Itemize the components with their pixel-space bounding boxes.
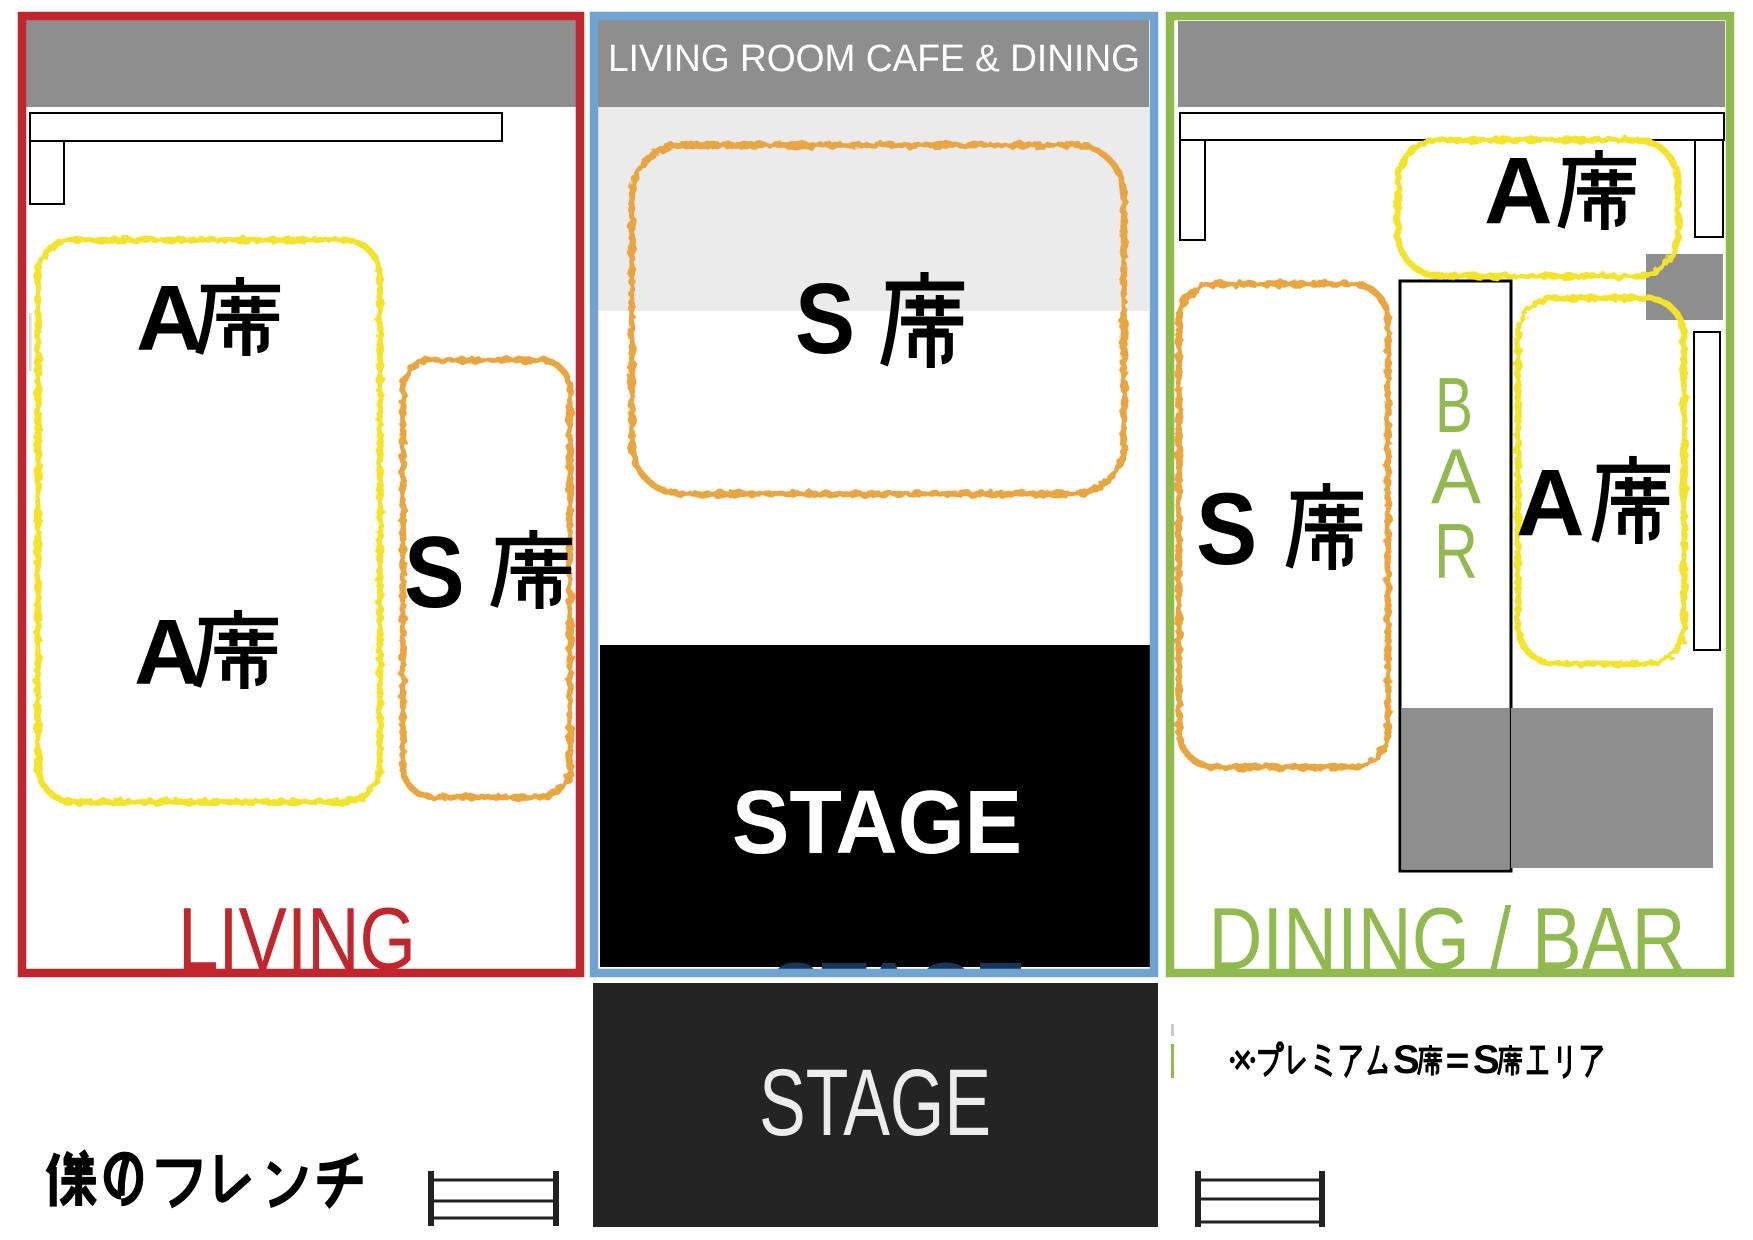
svg-text:S: S xyxy=(795,264,855,375)
svg-text:S: S xyxy=(1196,471,1257,586)
svg-text:S: S xyxy=(1393,1038,1420,1082)
svg-text:A: A xyxy=(1516,450,1585,556)
svg-text:S: S xyxy=(1473,1038,1500,1082)
svg-text:A: A xyxy=(1484,138,1553,244)
svg-text:STAGE: STAGE xyxy=(732,773,1022,873)
svg-text:A: A xyxy=(134,600,201,704)
svg-text:STAGE: STAGE xyxy=(759,1050,991,1156)
svg-text:DINING / BAR: DINING / BAR xyxy=(1209,889,1686,988)
svg-text:R: R xyxy=(1434,507,1478,595)
svg-text:S: S xyxy=(404,517,465,629)
svg-text:LIVING ROOM CAFE & DINING: LIVING ROOM CAFE & DINING xyxy=(608,38,1140,80)
svg-text:A: A xyxy=(136,266,203,370)
svg-text:LIVING: LIVING xyxy=(178,889,416,988)
